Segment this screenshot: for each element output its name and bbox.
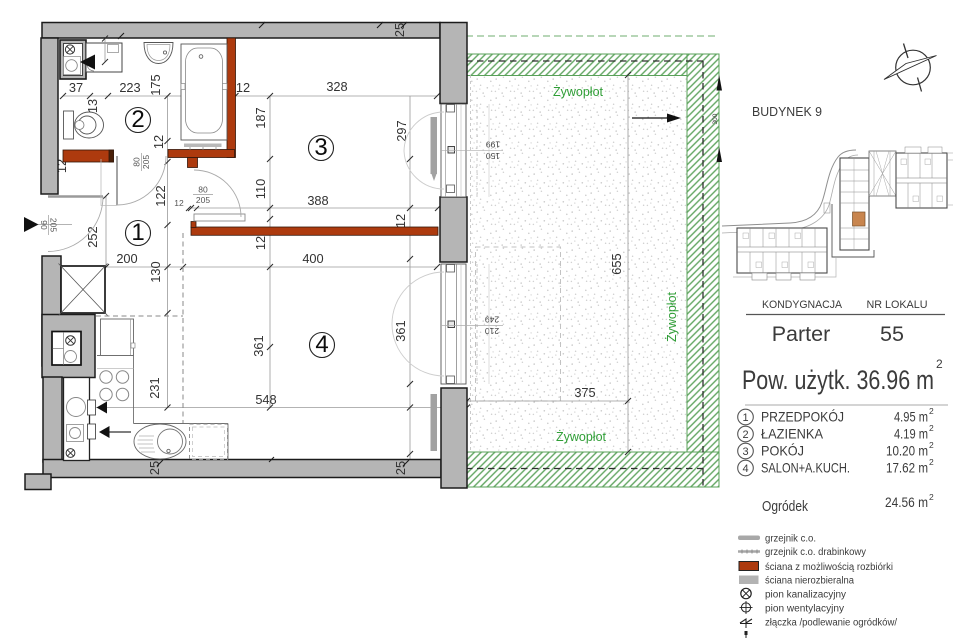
svg-text:187: 187 [253, 107, 268, 128]
svg-text:110: 110 [253, 179, 268, 199]
svg-text:231: 231 [147, 377, 162, 398]
svg-text:328: 328 [326, 79, 347, 94]
svg-text:361: 361 [251, 335, 266, 356]
svg-text:130: 130 [148, 261, 163, 282]
svg-text:80: 80 [198, 185, 208, 195]
svg-text:NR LOKALU: NR LOKALU [867, 299, 928, 311]
svg-text:3: 3 [314, 134, 327, 161]
svg-text:pion kanalizacyjny: pion kanalizacyjny [765, 590, 846, 601]
svg-text:ściana z możliwością rozbiórki: ściana z możliwością rozbiórki [765, 562, 893, 573]
svg-text:ŁAZIENKA: ŁAZIENKA [761, 427, 824, 442]
svg-text:17.62 m: 17.62 m [886, 461, 928, 476]
svg-text:2: 2 [936, 357, 943, 371]
svg-text:175: 175 [148, 74, 163, 95]
svg-text:2: 2 [131, 106, 144, 133]
svg-text:388: 388 [307, 193, 328, 208]
svg-text:10.20 m: 10.20 m [886, 444, 928, 459]
svg-text:Żywopłot: Żywopłot [553, 85, 604, 99]
svg-text:Ogródek: Ogródek [762, 499, 809, 515]
svg-text:548: 548 [255, 392, 276, 407]
svg-text:złączka /podlewanie ogródków/: złączka /podlewanie ogródków/ [765, 618, 897, 629]
svg-text:2: 2 [929, 406, 934, 416]
svg-text:80: 80 [132, 157, 142, 167]
svg-text:BUDYNEK 9: BUDYNEK 9 [752, 104, 822, 119]
svg-text:grzejnik c.o.: grzejnik c.o. [765, 534, 816, 545]
svg-text:150: 150 [486, 151, 500, 161]
svg-text:4: 4 [742, 463, 748, 475]
svg-text:ściana nierozbieralna: ściana nierozbieralna [765, 576, 854, 587]
svg-text:12: 12 [393, 214, 408, 228]
svg-text:4.95 m: 4.95 m [894, 410, 928, 425]
svg-text:223: 223 [119, 80, 140, 95]
svg-text:205: 205 [196, 195, 210, 205]
svg-text:SALON+A.KUCH.: SALON+A.KUCH. [761, 461, 850, 476]
svg-text:249: 249 [485, 315, 499, 325]
svg-text:1: 1 [131, 219, 144, 246]
svg-text:361: 361 [393, 320, 408, 341]
svg-text:122: 122 [153, 185, 168, 206]
svg-text:90: 90 [39, 220, 49, 230]
svg-text:POKÓJ: POKÓJ [761, 443, 804, 459]
svg-text:375: 375 [574, 385, 595, 400]
svg-text:KONDYGNACJA: KONDYGNACJA [762, 299, 842, 311]
svg-text:PRZEDPOKÓJ: PRZEDPOKÓJ [761, 409, 844, 425]
svg-text:200: 200 [116, 251, 137, 266]
svg-text:Parter: Parter [772, 322, 831, 346]
svg-text:Pow. użytk. 36.96 m: Pow. użytk. 36.96 m [742, 365, 934, 395]
svg-text:655: 655 [609, 253, 624, 274]
svg-text:297: 297 [394, 120, 409, 141]
svg-text:24.56 m: 24.56 m [885, 495, 928, 510]
svg-text:400: 400 [302, 251, 323, 266]
svg-text:pion wentylacyjny: pion wentylacyjny [765, 604, 844, 615]
svg-text:12: 12 [253, 236, 268, 250]
svg-text:4.19 m: 4.19 m [894, 427, 928, 442]
svg-text:37: 37 [69, 80, 83, 95]
svg-text:Żywopłot: Żywopłot [556, 430, 607, 444]
svg-text:2: 2 [929, 457, 934, 467]
svg-text:12: 12 [236, 80, 250, 95]
svg-text:12: 12 [151, 135, 166, 149]
svg-text:3: 3 [742, 446, 748, 458]
svg-text:Żywopłot: Żywopłot [665, 291, 679, 342]
svg-text:55: 55 [880, 322, 904, 346]
svg-text:2: 2 [742, 429, 748, 441]
svg-text:205: 205 [141, 155, 151, 169]
svg-text:2: 2 [929, 492, 934, 502]
svg-text:205: 205 [49, 218, 59, 232]
svg-text:300: 300 [712, 113, 719, 124]
svg-text:grzejnik c.o. drabinkowy: grzejnik c.o. drabinkowy [765, 547, 866, 558]
svg-text:2: 2 [929, 440, 934, 450]
svg-text:199: 199 [486, 140, 500, 150]
svg-text:4: 4 [315, 331, 328, 358]
svg-text:13: 13 [85, 99, 100, 113]
svg-text:12: 12 [174, 198, 184, 208]
svg-text:210: 210 [485, 326, 499, 336]
svg-text:1: 1 [742, 412, 748, 424]
svg-text:2: 2 [929, 423, 934, 433]
